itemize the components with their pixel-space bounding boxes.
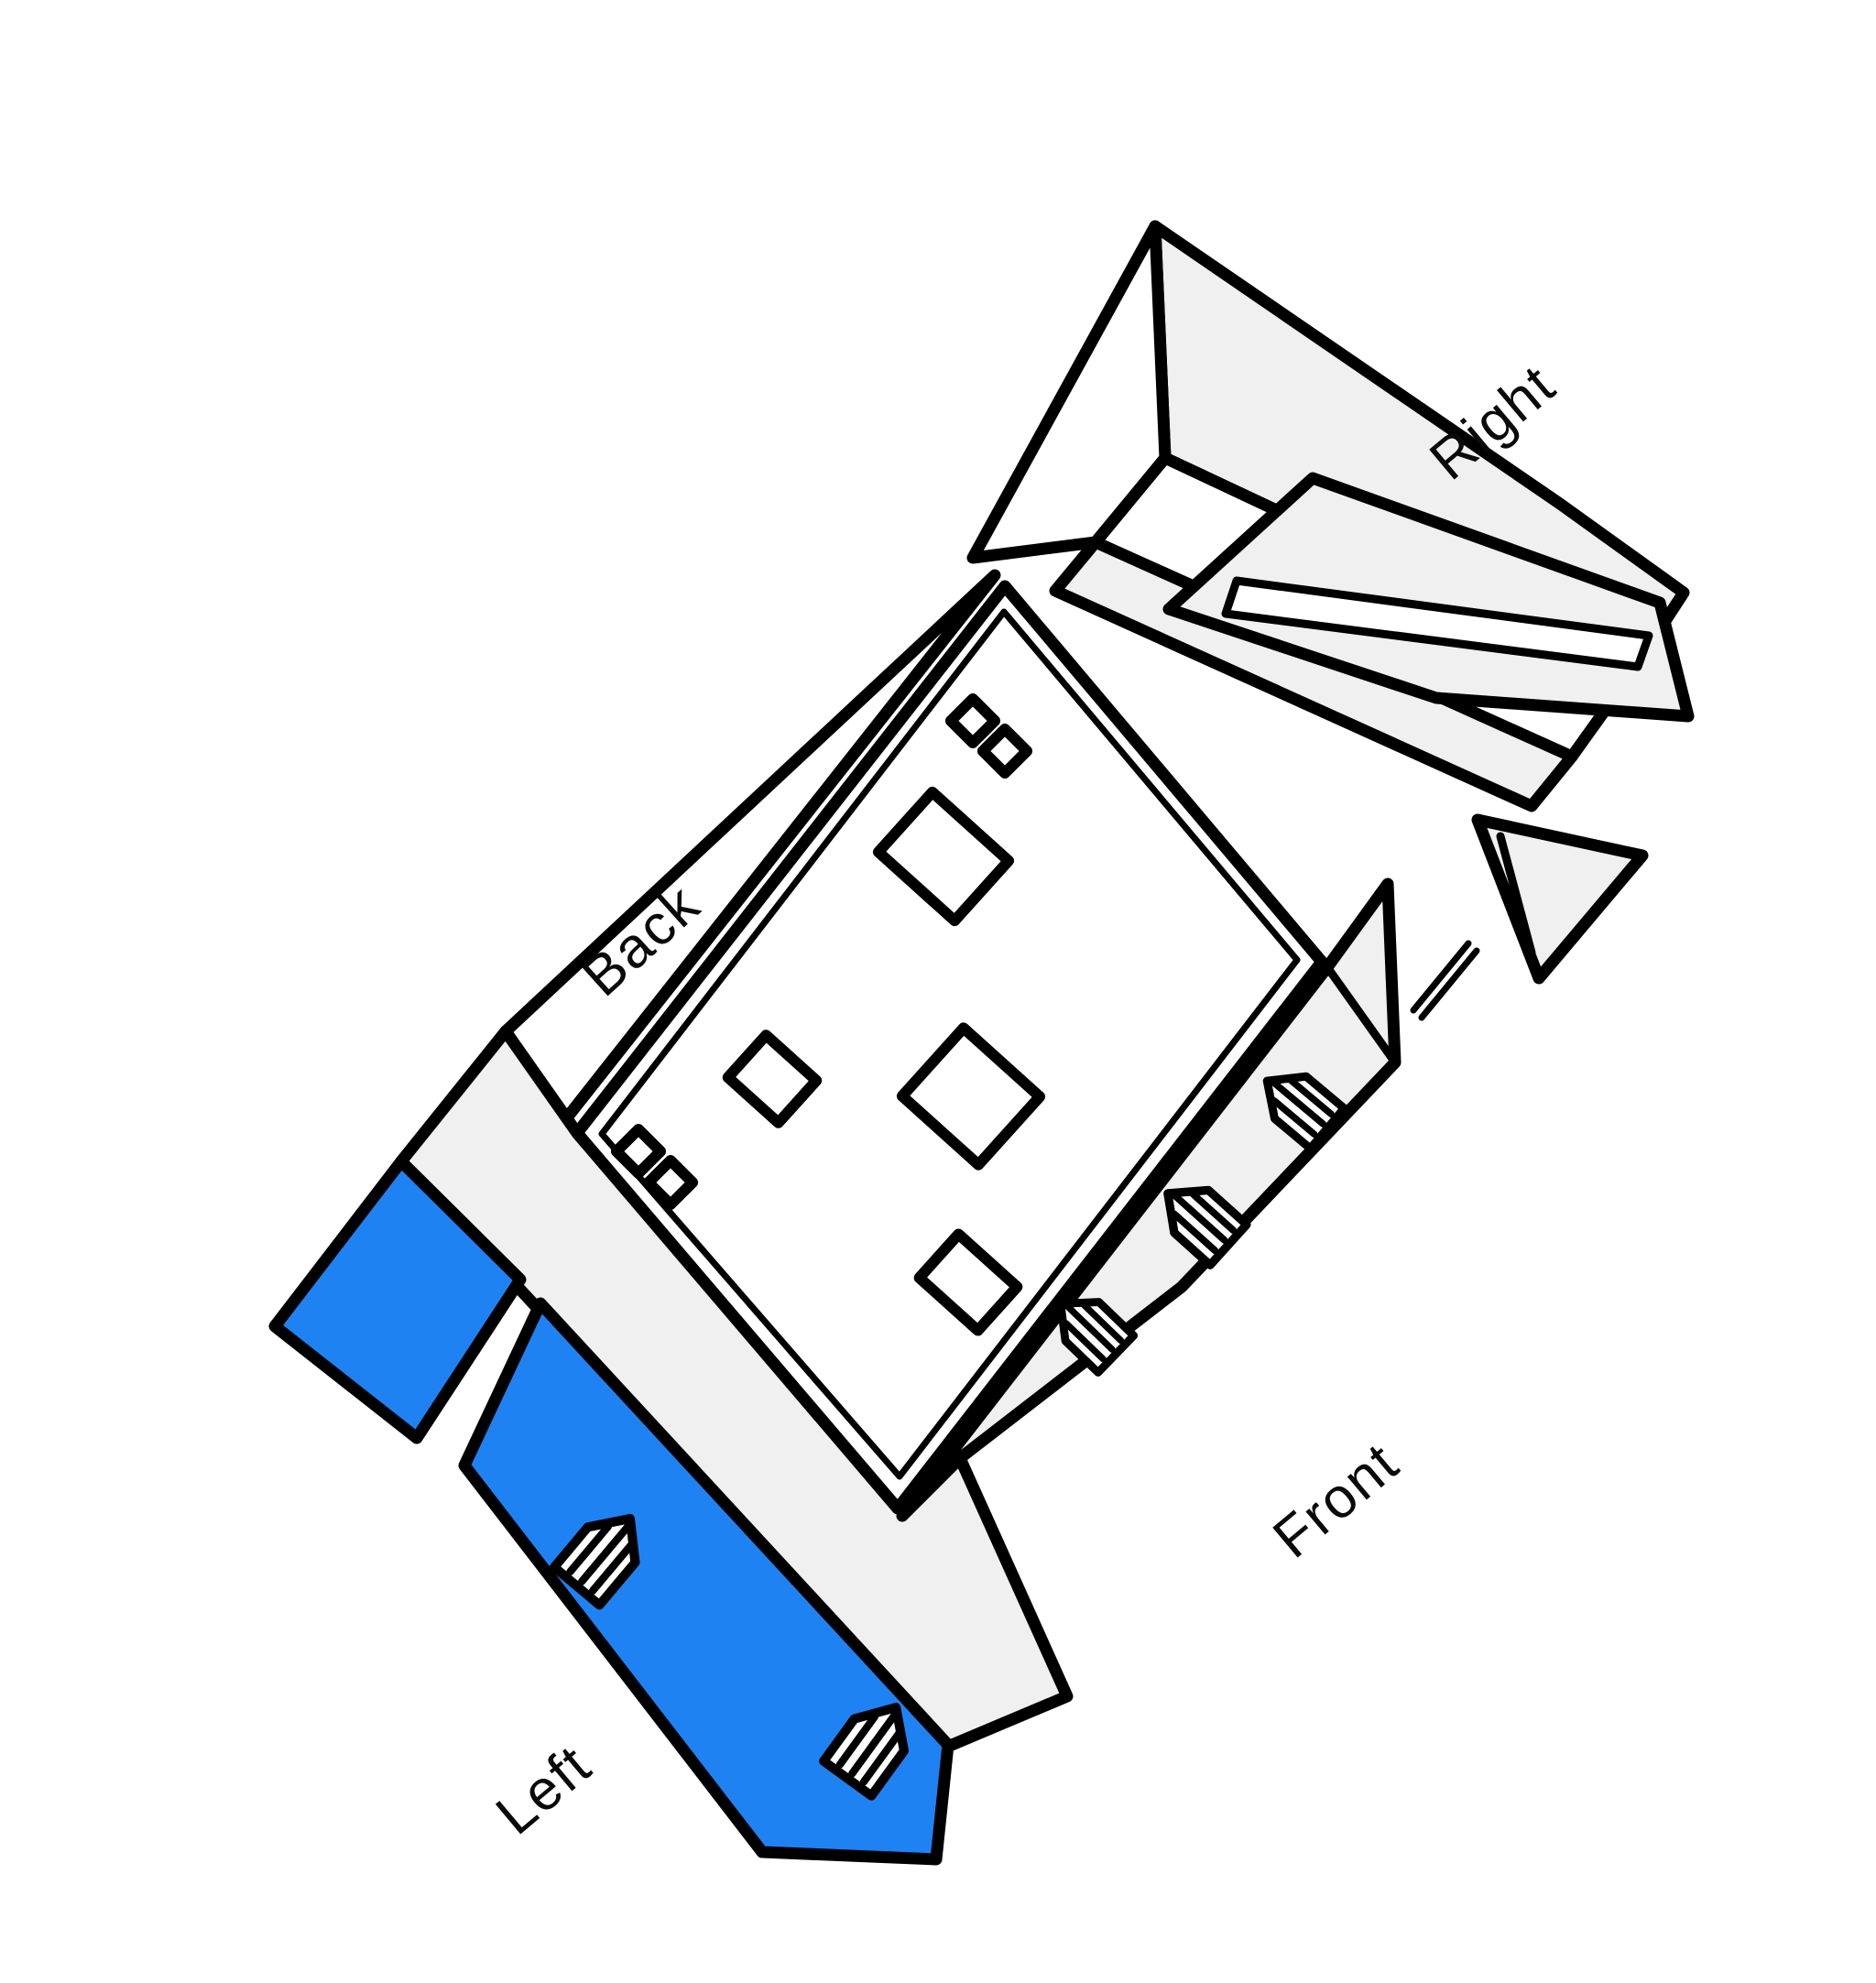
hinge-line [1413,943,1477,1018]
label-left: Left [485,1733,604,1847]
room-3d-sketch: Right Back Front Left [0,0,1876,1983]
label-front: Front [1261,1431,1411,1570]
room-sketch-canvas: Right Back Front Left [0,0,1876,1983]
